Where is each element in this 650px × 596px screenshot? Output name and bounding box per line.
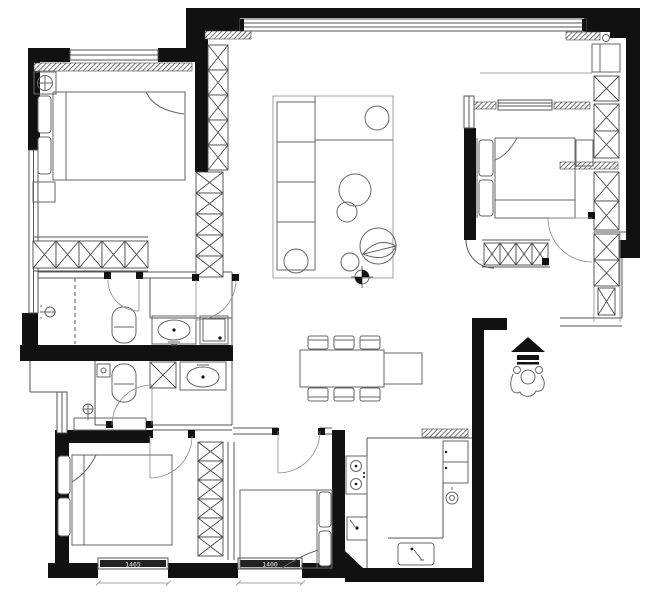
bench-bedroom2 bbox=[484, 243, 548, 265]
bedroom-bottom-middle bbox=[240, 490, 332, 568]
window-bedroom2-left bbox=[464, 96, 474, 128]
wardrobe-bedroom3 bbox=[198, 442, 223, 556]
dining-area bbox=[300, 336, 422, 401]
wardrobe-living-column bbox=[208, 45, 228, 170]
surveyor-target-icon bbox=[351, 266, 373, 288]
wall-circle-symbol bbox=[603, 35, 610, 42]
dining-table bbox=[300, 350, 384, 387]
vanity-basin bbox=[152, 316, 196, 345]
dimension-label-middle: 1400 bbox=[262, 561, 278, 569]
kitchen bbox=[346, 441, 468, 565]
dimension-line-left bbox=[96, 581, 171, 586]
window-step-left bbox=[57, 392, 67, 433]
fridge bbox=[443, 441, 468, 483]
door-bedroom3 bbox=[146, 430, 195, 478]
bed-double bbox=[38, 92, 185, 180]
window-bedroom1-top bbox=[70, 50, 158, 60]
shower-head-icon bbox=[40, 306, 56, 318]
floor-plan-page: 1465 1400 bbox=[0, 0, 650, 596]
dimension-label-left: 1465 bbox=[125, 561, 141, 569]
door-master-bath bbox=[104, 272, 143, 311]
closet-row-bedroom1 bbox=[33, 241, 148, 268]
kitchen-sink-main bbox=[398, 543, 434, 565]
window-living-top bbox=[240, 19, 586, 31]
coffee-table bbox=[337, 174, 371, 222]
gas-meter-icon bbox=[446, 487, 458, 504]
cooktop bbox=[346, 456, 367, 494]
cabinet-bath2 bbox=[150, 362, 176, 388]
kitchen-sink-small bbox=[347, 517, 367, 540]
toilet bbox=[112, 307, 136, 343]
dining-chairs-bottom bbox=[308, 388, 380, 401]
door-bedroom2 bbox=[542, 212, 595, 265]
floor-drain bbox=[97, 364, 110, 377]
living-room bbox=[273, 96, 396, 288]
shoe-cabinet-foyer bbox=[594, 234, 619, 286]
window-bedroom2-inner bbox=[498, 100, 552, 110]
side-table bbox=[365, 106, 389, 130]
wardrobe-bedroom2-lower bbox=[594, 172, 619, 230]
dimension-line-middle bbox=[236, 581, 305, 586]
master-bathroom bbox=[40, 278, 228, 345]
floor-plan-drawing: 1465 1400 bbox=[0, 0, 650, 596]
window-bedroom1-left bbox=[29, 150, 38, 313]
wardrobe-bedroom2-upper bbox=[594, 104, 619, 158]
plant bbox=[341, 228, 396, 271]
person-top-view-icon bbox=[511, 367, 544, 397]
vanity-basin bbox=[180, 362, 226, 390]
dining-chairs-top bbox=[308, 336, 380, 349]
dining-table-extension bbox=[384, 353, 422, 384]
closet bbox=[592, 44, 620, 72]
door-bedroom4 bbox=[272, 428, 325, 473]
door-swing-triangle-kitchen bbox=[345, 551, 363, 568]
bedroom-top-left bbox=[33, 72, 185, 202]
cabinets bbox=[33, 45, 619, 556]
entry-figure bbox=[511, 337, 545, 396]
bed-double bbox=[58, 455, 172, 545]
pouf bbox=[284, 249, 308, 273]
wardrobe-hall-column bbox=[196, 172, 223, 277]
washer bbox=[200, 316, 228, 344]
bed-double bbox=[240, 490, 332, 568]
shoe-cabinet-narrow bbox=[598, 288, 615, 315]
entry-arrow-icon bbox=[511, 337, 545, 352]
bedroom-bottom-left bbox=[58, 455, 172, 545]
cabinet-bedroom2-top bbox=[594, 76, 619, 101]
bed-double bbox=[477, 138, 575, 218]
